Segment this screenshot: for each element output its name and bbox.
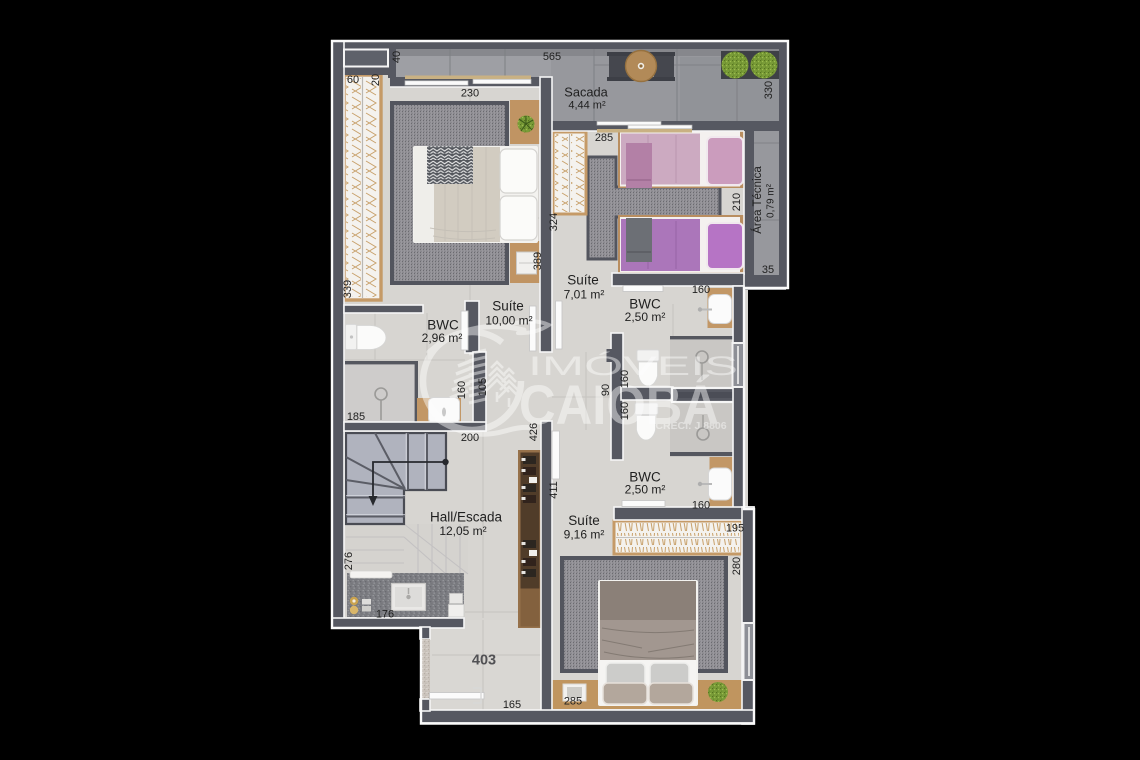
svg-text:426: 426	[528, 423, 540, 441]
svg-text:285: 285	[595, 132, 613, 144]
svg-text:2,50 m²: 2,50 m²	[625, 483, 666, 497]
svg-text:10,00 m²: 10,00 m²	[485, 314, 532, 328]
svg-text:160: 160	[692, 500, 710, 512]
svg-text:160: 160	[692, 284, 710, 296]
svg-text:339: 339	[342, 280, 354, 298]
svg-text:285: 285	[564, 696, 582, 708]
svg-text:90: 90	[600, 384, 612, 396]
svg-text:12,05 m²: 12,05 m²	[439, 524, 486, 538]
svg-text:105: 105	[477, 378, 489, 396]
svg-text:165: 165	[503, 699, 521, 711]
svg-text:Hall/Escada: Hall/Escada	[430, 510, 503, 525]
svg-text:Sacada: Sacada	[564, 85, 608, 100]
svg-text:160: 160	[456, 381, 468, 399]
svg-text:35: 35	[762, 264, 774, 276]
svg-text:330: 330	[763, 81, 775, 99]
svg-text:160: 160	[619, 370, 631, 388]
svg-text:411: 411	[548, 481, 560, 499]
svg-text:20: 20	[370, 74, 382, 86]
svg-text:4,44 m²: 4,44 m²	[568, 100, 606, 112]
svg-text:389: 389	[532, 252, 544, 270]
svg-text:9,16 m²: 9,16 m²	[564, 528, 605, 542]
svg-text:Suíte: Suíte	[567, 273, 599, 288]
svg-text:2,50 m²: 2,50 m²	[625, 310, 666, 324]
svg-text:276: 276	[343, 552, 355, 570]
svg-text:324: 324	[548, 213, 560, 231]
svg-text:280: 280	[731, 557, 743, 575]
svg-text:CRECI: J 8806: CRECI: J 8806	[655, 420, 726, 432]
svg-text:Área Técnica: Área Técnica	[751, 166, 764, 234]
svg-text:195: 195	[726, 523, 744, 535]
svg-text:7,01 m²: 7,01 m²	[564, 288, 605, 302]
svg-text:40: 40	[391, 51, 403, 63]
svg-text:200: 200	[461, 432, 479, 444]
svg-text:403: 403	[472, 653, 496, 669]
svg-text:160: 160	[619, 402, 631, 420]
svg-text:230: 230	[461, 88, 479, 100]
svg-text:185: 185	[347, 411, 365, 423]
svg-text:565: 565	[543, 51, 561, 63]
svg-text:176: 176	[376, 609, 394, 621]
svg-text:2,96 m²: 2,96 m²	[422, 331, 463, 345]
svg-text:0,79 m²: 0,79 m²	[766, 183, 777, 218]
svg-text:Suíte: Suíte	[568, 513, 600, 528]
svg-text:Suíte: Suíte	[492, 299, 524, 314]
svg-text:210: 210	[731, 193, 743, 211]
svg-text:60: 60	[347, 74, 359, 86]
